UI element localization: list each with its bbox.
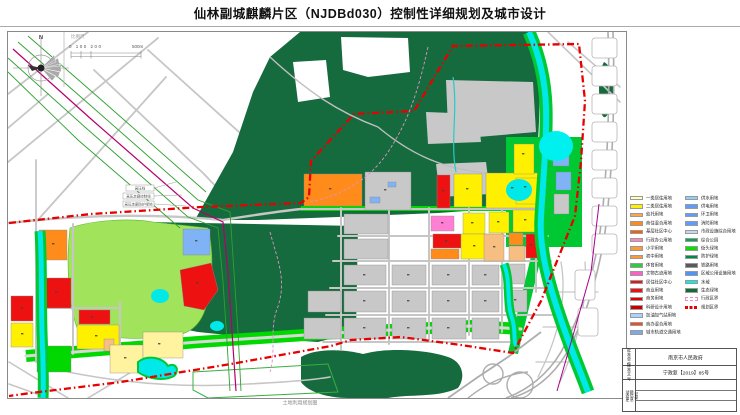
legend-swatch <box>685 196 698 201</box>
approval-unit-row: 批准单位 南京市人民政府 <box>623 349 736 366</box>
legend-label: 环卫用地 <box>701 213 718 217</box>
legend-item: 行政区界 <box>685 295 738 303</box>
legend-label: 二类居住用地 <box>646 204 672 208</box>
scale-title: 比例尺 <box>71 33 85 40</box>
page-title: 仙林副城麒麟片区（NJDBd030）控制性详细规划及城市设计 <box>0 3 740 22</box>
legend-label: 铁路用地 <box>701 263 718 267</box>
legend-label: 居住社区中心 <box>646 280 672 284</box>
legend-swatch <box>630 213 643 218</box>
legend-swatch <box>685 238 698 243</box>
legend-swatch <box>630 271 643 276</box>
legend-label: 基层社区中心 <box>646 230 672 234</box>
scale-ticks-label: 0 100 200 <box>69 44 103 49</box>
legend-item: 水域 <box>685 278 738 286</box>
legend-item: 商办混合用地 <box>630 320 684 328</box>
legend-swatch <box>630 255 643 260</box>
legend-swatch <box>630 230 643 235</box>
scale-end-label: 500m <box>132 44 144 49</box>
legend-label: 城市轨道交通用地 <box>646 330 681 334</box>
legend-swatch <box>630 204 643 209</box>
legend-item: 城市轨道交通用地 <box>630 328 684 336</box>
update-record-label: 动态更新信息记录 <box>625 388 633 403</box>
legend-swatch <box>630 322 643 327</box>
update-record-empty-line <box>636 380 736 391</box>
legend-label: 加油加气站用地 <box>646 314 676 318</box>
legend-label: 行政办公用地 <box>646 238 672 242</box>
plan-sheet: 仙林副城麒麟片区（NJDBd030）控制性详细规划及城市设计 <box>0 0 740 415</box>
legend-swatch <box>685 263 698 268</box>
legend-swatch <box>685 271 698 276</box>
legend-swatch <box>630 196 643 201</box>
legend-swatch <box>630 280 643 285</box>
approval-unit-value: 南京市人民政府 <box>669 353 704 360</box>
legend-swatch <box>685 255 698 260</box>
legend-item: 小学用地 <box>630 244 684 252</box>
legend-item: 一类居住用地 <box>630 194 684 202</box>
legend-swatch <box>685 306 698 309</box>
approval-title-block: 批准单位 南京市人民政府 批准文号 宁政复【2019】85号 动态更新信息记录 <box>622 348 737 412</box>
update-record-row: 动态更新信息记录 <box>623 380 736 411</box>
legend-item: 商务用地 <box>630 295 684 303</box>
approval-number-row: 批准文号 宁政复【2019】85号 <box>623 366 736 380</box>
legend-item: 消防用地 <box>685 219 738 227</box>
legend-label: 小学用地 <box>646 246 663 250</box>
legend-item: 商住混合用地 <box>630 219 684 227</box>
legend-swatch <box>685 230 698 235</box>
legend-item: 加油加气站用地 <box>630 311 684 319</box>
title-divider <box>0 26 740 27</box>
legend-label: 商办混合用地 <box>646 322 672 326</box>
legend-label: 一类居住用地 <box>646 196 672 200</box>
legend-label: 消防用地 <box>701 221 718 225</box>
legend-swatch <box>630 288 643 293</box>
legend-swatch <box>685 297 698 302</box>
legend-item: 体育用地 <box>630 261 684 269</box>
legend-swatch <box>685 213 698 218</box>
legend-swatch <box>630 313 643 318</box>
legend-item: 供电用地 <box>685 202 738 210</box>
update-record-label-cell: 动态更新信息记录 <box>623 380 636 411</box>
legend-label: 防护绿地 <box>701 255 718 259</box>
legend-item: 生态绿地 <box>685 286 738 294</box>
legend-swatch <box>630 330 643 335</box>
approval-number-label-cell: 批准文号 <box>623 366 636 379</box>
legend-swatch <box>630 221 643 226</box>
legend-swatch <box>630 263 643 268</box>
legend-item: 商业用地 <box>630 286 684 294</box>
legend-label: 市政设施综合用地 <box>701 230 736 234</box>
legend-swatch <box>685 204 698 209</box>
legend-item: 幼托用地 <box>630 211 684 219</box>
corridor-label-2: 高压走廊控制线 <box>126 194 151 199</box>
legend-swatch <box>685 288 698 293</box>
update-record-empty-line <box>636 401 736 411</box>
legend-label: 商住混合用地 <box>646 221 672 225</box>
legend-swatch <box>685 246 698 251</box>
corridor-label-3: 高压走廊防护绿地 <box>125 202 153 207</box>
approval-number-value-cell: 宁政复【2019】85号 <box>636 366 736 379</box>
legend-label: 商务用地 <box>646 297 663 301</box>
legend-item: 环卫用地 <box>685 211 738 219</box>
map-caption: 土地利用规划图 <box>273 399 328 406</box>
legend-item: 综合公园 <box>685 236 738 244</box>
legend-swatch <box>630 246 643 251</box>
legend-label: 区域公用设施用地 <box>701 272 736 276</box>
legend-label: 供电用地 <box>701 204 718 208</box>
legend-label: 初中用地 <box>646 255 663 259</box>
legend-item: 行政办公用地 <box>630 236 684 244</box>
legend-col-left: 一类居住用地二类居住用地幼托用地商住混合用地基层社区中心行政办公用地小学用地初中… <box>630 194 684 337</box>
legend-item: 科研设计用地 <box>630 303 684 311</box>
legend-label: 幼托用地 <box>646 213 663 217</box>
legend-label: 生态绿地 <box>701 288 718 292</box>
north-label: N <box>39 35 43 41</box>
legend-swatch <box>630 305 643 310</box>
legend-item: 铁路用地 <box>685 261 738 269</box>
legend-label: 街头绿地 <box>701 246 718 250</box>
legend-label: 综合公园 <box>701 238 718 242</box>
legend-item: 供水用地 <box>685 194 738 202</box>
legend-label: 科研设计用地 <box>646 305 672 309</box>
legend-label: 规划区界 <box>701 305 718 309</box>
legend-item: 市政设施综合用地 <box>685 228 738 236</box>
legend-label: 商业用地 <box>646 288 663 292</box>
legend-item: 初中用地 <box>630 253 684 261</box>
legend-swatch <box>685 280 698 285</box>
legend-swatch <box>630 297 643 302</box>
legend-item: 基层社区中心 <box>630 228 684 236</box>
legend-swatch <box>685 221 698 226</box>
legend-item: 规划区界 <box>685 303 738 311</box>
legend-col-right: 供水用地供电用地环卫用地消防用地市政设施综合用地综合公园街头绿地防护绿地铁路用地… <box>685 194 738 311</box>
legend-item: 街头绿地 <box>685 244 738 252</box>
legend-label: 文物古迹用地 <box>646 272 672 276</box>
approval-unit-value-cell: 南京市人民政府 <box>636 349 736 365</box>
approval-number-value: 宁政复【2019】85号 <box>663 369 709 376</box>
legend-item: 二类居住用地 <box>630 202 684 210</box>
legend-item: 居住社区中心 <box>630 278 684 286</box>
approval-number-label: 批准文号 <box>626 363 632 381</box>
update-record-lines <box>636 380 736 411</box>
land-use-map: 高压线 高压走廊控制线 高压走廊防护绿地 N 比例尺 0 100 200 500… <box>7 31 627 399</box>
legend-label: 供水用地 <box>701 196 718 200</box>
legend-item: 文物古迹用地 <box>630 270 684 278</box>
legend-item: 防护绿地 <box>685 253 738 261</box>
planning-map-svg: 高压线 高压走廊控制线 高压走廊防护绿地 N 比例尺 0 100 200 500… <box>8 32 626 398</box>
legend-item: 区域公用设施用地 <box>685 270 738 278</box>
legend-swatch <box>630 238 643 243</box>
update-record-empty-line <box>636 391 736 402</box>
legend-label: 体育用地 <box>646 263 663 267</box>
legend-label: 行政区界 <box>701 297 718 301</box>
corridor-label-1: 高压线 <box>135 186 146 191</box>
legend-label: 水域 <box>701 280 710 284</box>
